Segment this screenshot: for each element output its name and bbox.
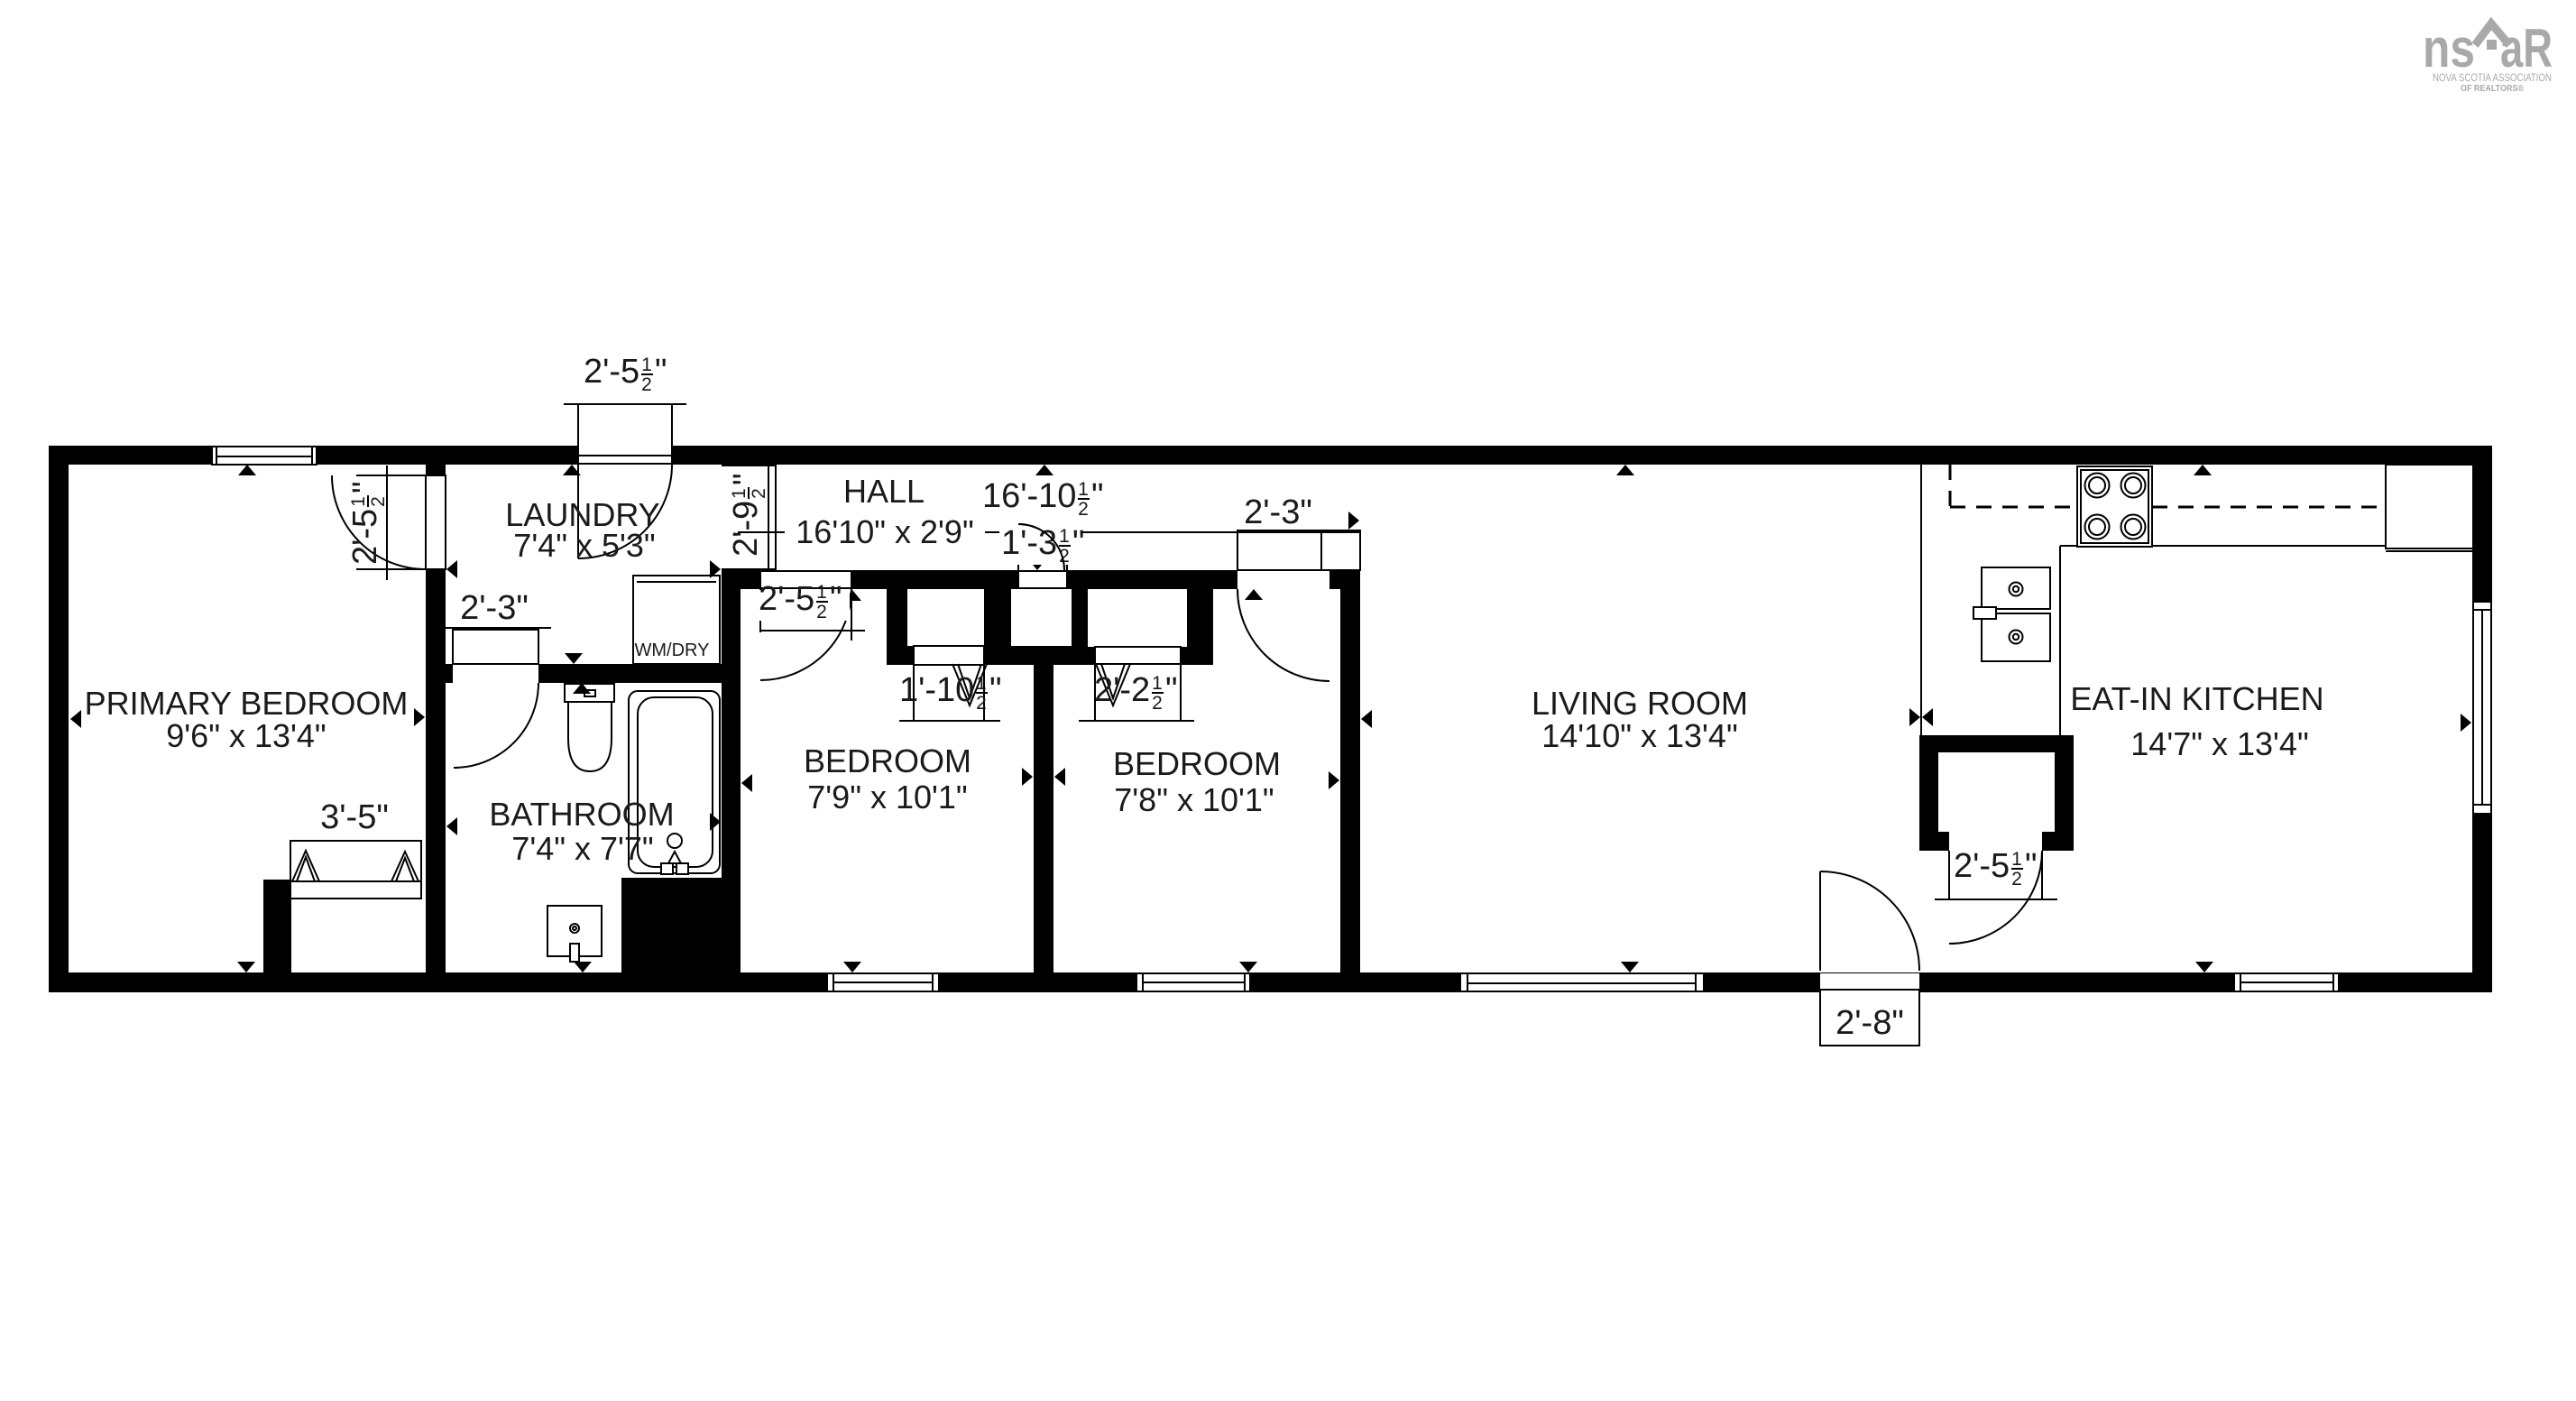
svg-text:ns: ns <box>2423 18 2475 78</box>
svg-text:2'-5: 2'-5 <box>584 353 639 391</box>
svg-text:2: 2 <box>641 374 652 395</box>
svg-text:1: 1 <box>976 673 987 694</box>
svg-text:BEDROOM: BEDROOM <box>1113 745 1281 782</box>
svg-text:": " <box>830 580 842 618</box>
svg-text:BEDROOM: BEDROOM <box>804 742 971 779</box>
svg-text:3'-5": 3'-5" <box>320 798 389 836</box>
svg-text:9'6" x 13'4": 9'6" x 13'4" <box>166 717 326 754</box>
svg-text:EAT-IN KITCHEN: EAT-IN KITCHEN <box>2070 680 2323 717</box>
svg-text:HALL: HALL <box>843 473 925 510</box>
svg-text:2'-5: 2'-5 <box>759 580 814 618</box>
svg-text:14'10" x 13'4": 14'10" x 13'4" <box>1541 717 1737 754</box>
svg-text:7'4" x 7'7": 7'4" x 7'7" <box>511 830 653 867</box>
svg-text:16'-10: 16'-10 <box>982 477 1076 515</box>
svg-text:WM/DRY: WM/DRY <box>635 641 710 660</box>
svg-text:NOVA SCOTIA ASSOCIATION: NOVA SCOTIA ASSOCIATION <box>2433 71 2552 84</box>
svg-text:2'-8": 2'-8" <box>1835 1004 1904 1042</box>
svg-text:": " <box>1165 671 1178 709</box>
svg-text:2: 2 <box>816 602 827 622</box>
svg-text:1: 1 <box>2011 849 2022 870</box>
svg-text:2'-5: 2'-5 <box>1954 847 2010 885</box>
svg-text:1'-3: 1'-3 <box>1001 524 1057 562</box>
svg-text:1'-10: 1'-10 <box>899 671 974 709</box>
svg-text:2: 2 <box>976 693 987 714</box>
svg-text:": " <box>655 353 667 391</box>
svg-text:1: 1 <box>816 582 827 603</box>
svg-text:2: 2 <box>1078 499 1089 520</box>
svg-text:14'7" x 13'4": 14'7" x 13'4" <box>2130 725 2308 762</box>
svg-text:1: 1 <box>1152 673 1163 694</box>
svg-text:2'-3": 2'-3" <box>1244 493 1312 531</box>
svg-text:2: 2 <box>368 496 389 507</box>
svg-text:2'-2: 2'-2 <box>1094 671 1150 709</box>
svg-text:1: 1 <box>348 496 369 507</box>
svg-text:7'8" x 10'1": 7'8" x 10'1" <box>1114 781 1274 818</box>
svg-text:": " <box>1091 477 1104 515</box>
svg-text:OF REALTORS®: OF REALTORS® <box>2461 84 2525 94</box>
svg-text:2'-9: 2'-9 <box>727 501 765 557</box>
svg-text:": " <box>2025 847 2038 885</box>
svg-text:1: 1 <box>729 488 750 499</box>
svg-text:PRIMARY BEDROOM: PRIMARY BEDROOM <box>85 685 409 722</box>
svg-text:2'-3": 2'-3" <box>460 589 529 627</box>
svg-text:aR: aR <box>2500 18 2553 78</box>
svg-text:7'9" x 10'1": 7'9" x 10'1" <box>807 779 967 816</box>
svg-text:": " <box>346 482 384 494</box>
svg-text:LIVING ROOM: LIVING ROOM <box>1532 685 1748 722</box>
svg-text:1: 1 <box>1059 526 1070 547</box>
svg-text:1: 1 <box>1078 479 1089 500</box>
svg-text:2: 2 <box>749 488 769 499</box>
svg-text:2: 2 <box>2011 869 2022 889</box>
svg-text:": " <box>727 474 765 486</box>
svg-text:2: 2 <box>1152 693 1163 714</box>
svg-text:BATHROOM: BATHROOM <box>489 796 674 833</box>
svg-text:2'-5: 2'-5 <box>346 509 384 565</box>
svg-text:": " <box>1072 524 1085 562</box>
svg-text:": " <box>989 671 1002 709</box>
svg-text:7'4" x 5'3": 7'4" x 5'3" <box>513 527 655 564</box>
svg-text:16'10" x 2'9": 16'10" x 2'9" <box>796 513 973 550</box>
svg-text:1: 1 <box>641 355 652 375</box>
